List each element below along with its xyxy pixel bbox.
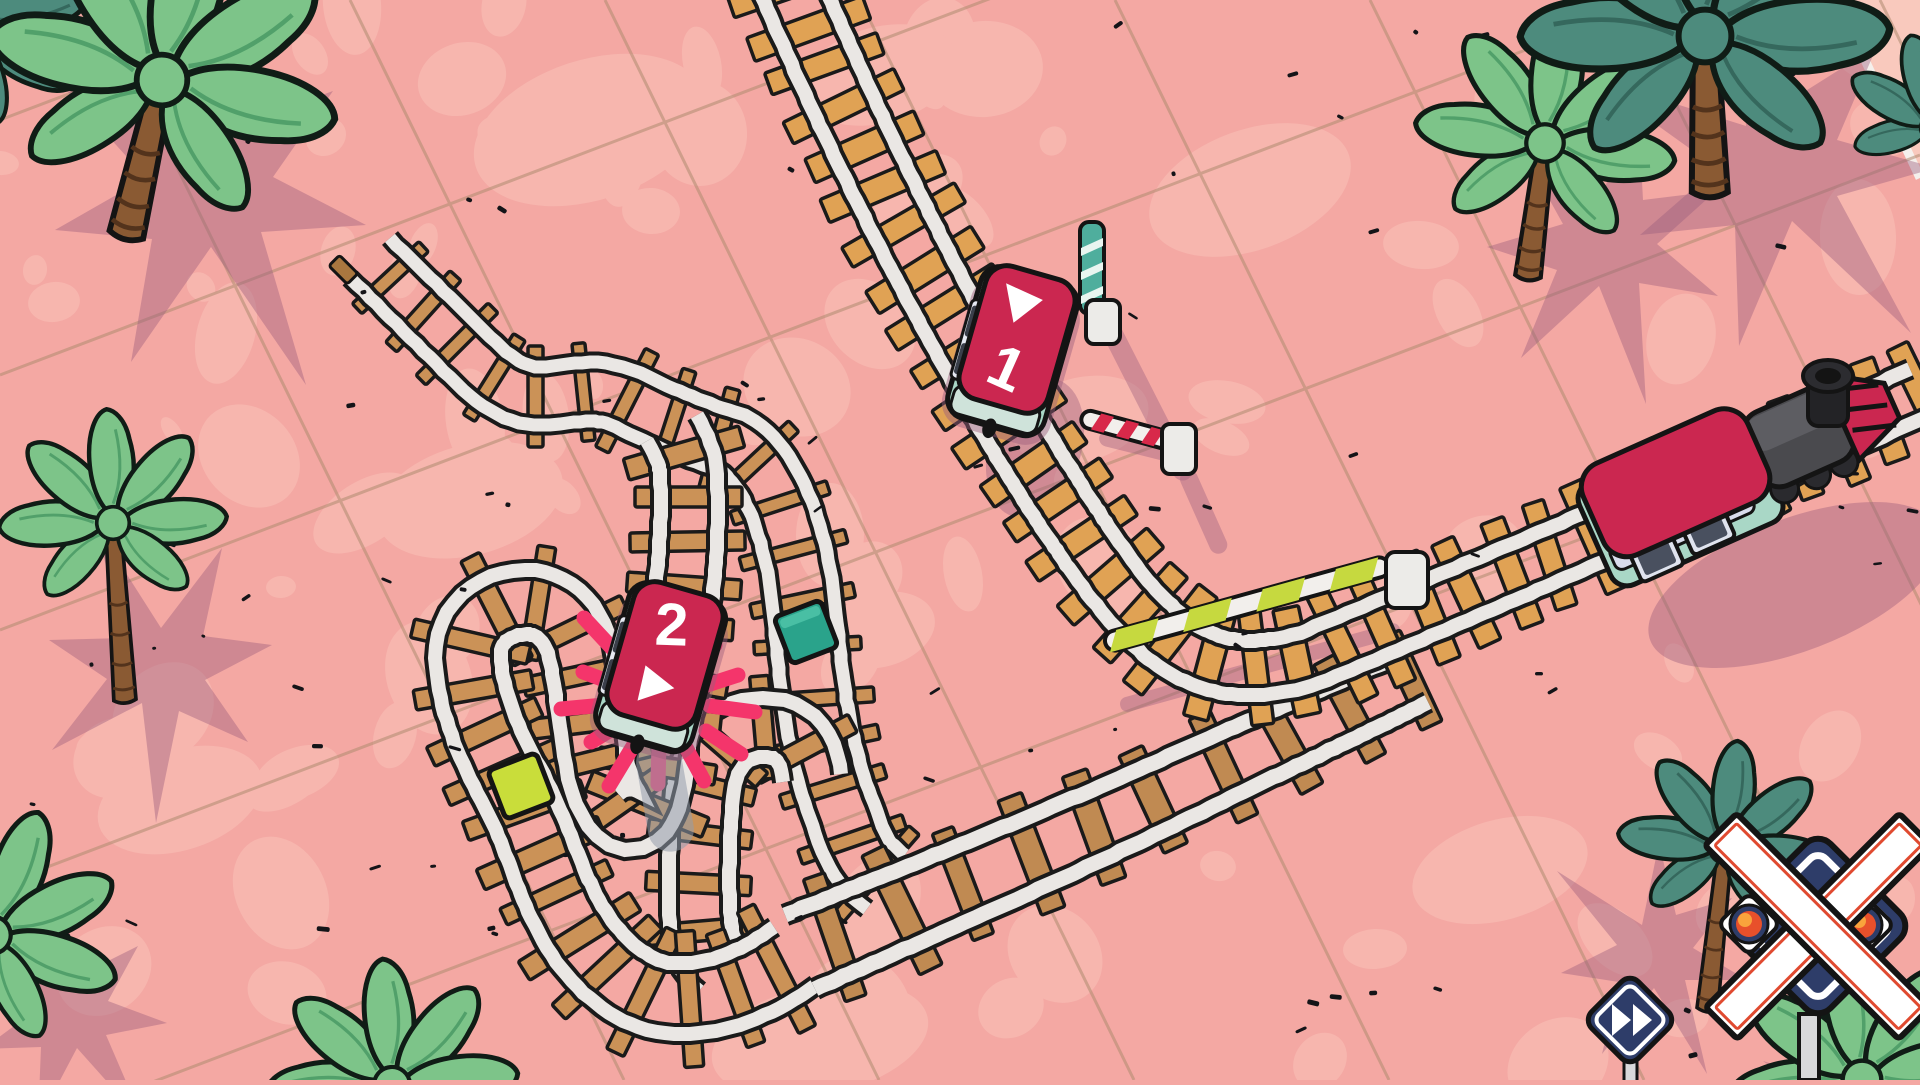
svg-text:2: 2: [654, 591, 690, 659]
